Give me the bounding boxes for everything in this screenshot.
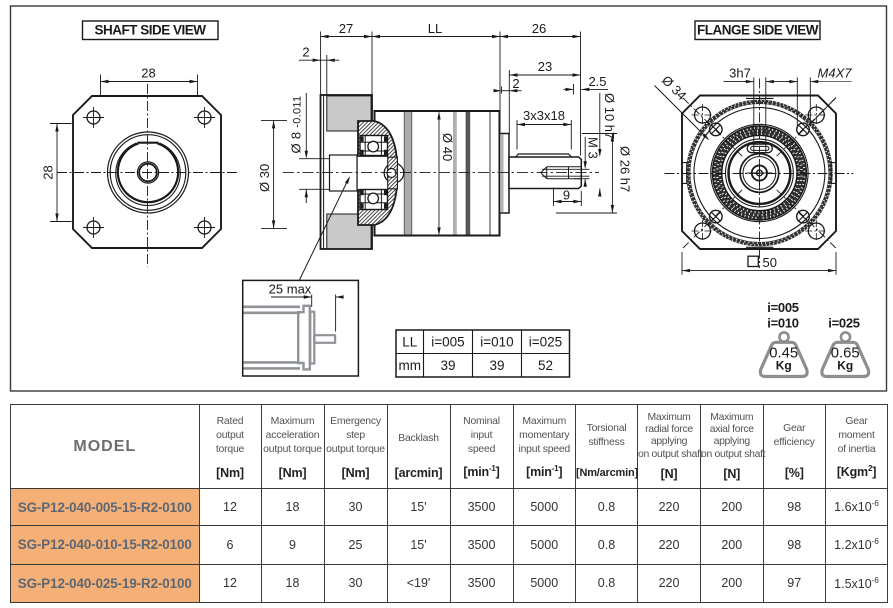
svg-text:3h7: 3h7 — [729, 66, 751, 81]
svg-text:9: 9 — [563, 188, 570, 203]
svg-text:39: 39 — [489, 358, 504, 373]
svg-text:50: 50 — [763, 255, 777, 270]
svg-text:mm: mm — [399, 358, 422, 373]
svg-text:Ø 8 -0.011: Ø 8 -0.011 — [289, 96, 304, 154]
svg-text:Kg: Kg — [837, 359, 853, 373]
svg-text:2: 2 — [512, 76, 519, 91]
svg-text:2.5: 2.5 — [588, 74, 606, 89]
svg-text:25 max: 25 max — [269, 282, 312, 297]
svg-text:28: 28 — [41, 165, 56, 179]
svg-text:2: 2 — [302, 45, 309, 60]
svg-text:Ø 40: Ø 40 — [440, 133, 455, 161]
svg-text:i=010: i=010 — [767, 316, 798, 331]
svg-text:M 3: M 3 — [586, 137, 601, 159]
svg-text:M4X7: M4X7 — [818, 66, 853, 81]
svg-text:i=005: i=005 — [767, 300, 798, 315]
svg-text:27: 27 — [339, 21, 353, 36]
svg-text:i=025: i=025 — [529, 335, 562, 350]
svg-text:Ø 10 h7: Ø 10 h7 — [602, 93, 617, 139]
svg-text:3x3x18: 3x3x18 — [523, 108, 565, 123]
svg-text:39: 39 — [440, 358, 455, 373]
svg-text:Ø 26 h7: Ø 26 h7 — [618, 146, 633, 192]
svg-text:FLANGE SIDE VIEW: FLANGE SIDE VIEW — [697, 23, 819, 38]
svg-text:i=010: i=010 — [480, 335, 513, 350]
svg-text:52: 52 — [538, 358, 553, 373]
svg-text:Ø 34: Ø 34 — [659, 73, 690, 104]
svg-text:SHAFT SIDE VIEW: SHAFT SIDE VIEW — [94, 23, 206, 38]
svg-text:Kg: Kg — [776, 359, 792, 373]
svg-text:26: 26 — [532, 21, 546, 36]
svg-text:23: 23 — [538, 59, 552, 74]
svg-text:Ø 30: Ø 30 — [257, 164, 272, 192]
svg-text:LL: LL — [402, 335, 418, 350]
svg-text:LL: LL — [428, 21, 442, 36]
svg-text:i=005: i=005 — [431, 335, 464, 350]
svg-text:i=025: i=025 — [828, 316, 859, 331]
svg-text:28: 28 — [141, 66, 155, 81]
